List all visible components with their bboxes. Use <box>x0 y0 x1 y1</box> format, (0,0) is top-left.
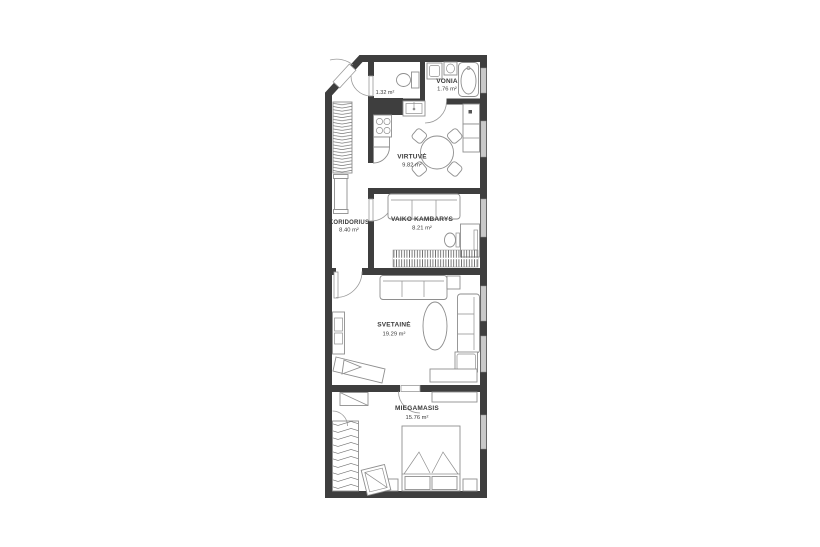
desk-chair <box>445 233 456 247</box>
window-living-2 <box>481 336 486 372</box>
room-label-miegamasis: MIEGAMASIS <box>395 405 439 412</box>
living-sofa <box>380 276 447 300</box>
room-label-miegamasis-area: 15.76 m² <box>406 415 429 421</box>
corner-sofa <box>458 294 480 353</box>
children-monitor <box>474 230 478 250</box>
children-door-leaf <box>369 199 373 221</box>
stove <box>374 115 392 137</box>
window-kitchen <box>481 121 486 157</box>
room-label-koridorius-area: 8.40 m² <box>339 228 359 234</box>
window-bedroom <box>481 415 486 449</box>
ottoman-cushion <box>457 354 476 370</box>
window-living-1 <box>481 286 486 321</box>
toilet-bowl <box>397 74 411 87</box>
window-children-room <box>481 199 486 237</box>
low-cabinet <box>430 369 477 382</box>
room-label-vonia: VONIA <box>436 78 458 85</box>
room-label-virtuve-area: 9.82 m² <box>402 163 422 169</box>
side-table <box>447 276 460 289</box>
dining-table <box>421 136 454 169</box>
bench <box>335 179 348 210</box>
fridge <box>463 104 480 124</box>
toilet-tank <box>412 72 420 88</box>
bed-mattress <box>432 477 457 490</box>
room-label-wc-area: 1.32 m² <box>376 90 395 96</box>
nightstand-right <box>463 479 477 491</box>
room-label-vaiko: VAIKO KAMBARYS <box>391 216 453 223</box>
room-label-svetaine-area: 19.29 m² <box>383 332 406 338</box>
tv-stand-door <box>335 333 343 344</box>
floor-plan: 1.32 m² VONIA 1.76 m² VIRTUVĖ <box>0 0 820 547</box>
wc-door-leaf <box>369 76 373 96</box>
bed-mattress <box>405 477 430 490</box>
room-label-koridorius: KORIDORIUS <box>329 220 369 226</box>
window-vonia <box>481 68 486 93</box>
bedroom-door-leaf <box>401 386 420 392</box>
room-label-svetaine: SVETAINĖ <box>377 321 411 329</box>
room-label-vonia-area: 1.76 m² <box>437 87 457 93</box>
floor-plan-canvas: 1.32 m² VONIA 1.76 m² VIRTUVĖ <box>0 0 820 547</box>
kitchen-counter <box>374 137 390 147</box>
room-label-virtuve: VIRTUVĖ <box>397 153 427 161</box>
bedroom-wardrobe <box>333 421 359 491</box>
kitchen-wall-chunk <box>368 98 403 115</box>
living-door-leaf <box>334 272 338 298</box>
hall-wardrobe <box>333 102 352 173</box>
fridge-handle <box>469 110 473 114</box>
washing-machine-drum <box>430 66 440 77</box>
tv-stand-door <box>335 318 343 331</box>
kitchen-tap-head <box>413 108 416 111</box>
bench-end <box>334 175 349 179</box>
room-label-vaiko-area: 8.21 m² <box>412 226 432 232</box>
bedroom-shelf-right <box>432 392 477 402</box>
bench-end <box>334 210 349 214</box>
desk-chair-back <box>456 233 460 247</box>
